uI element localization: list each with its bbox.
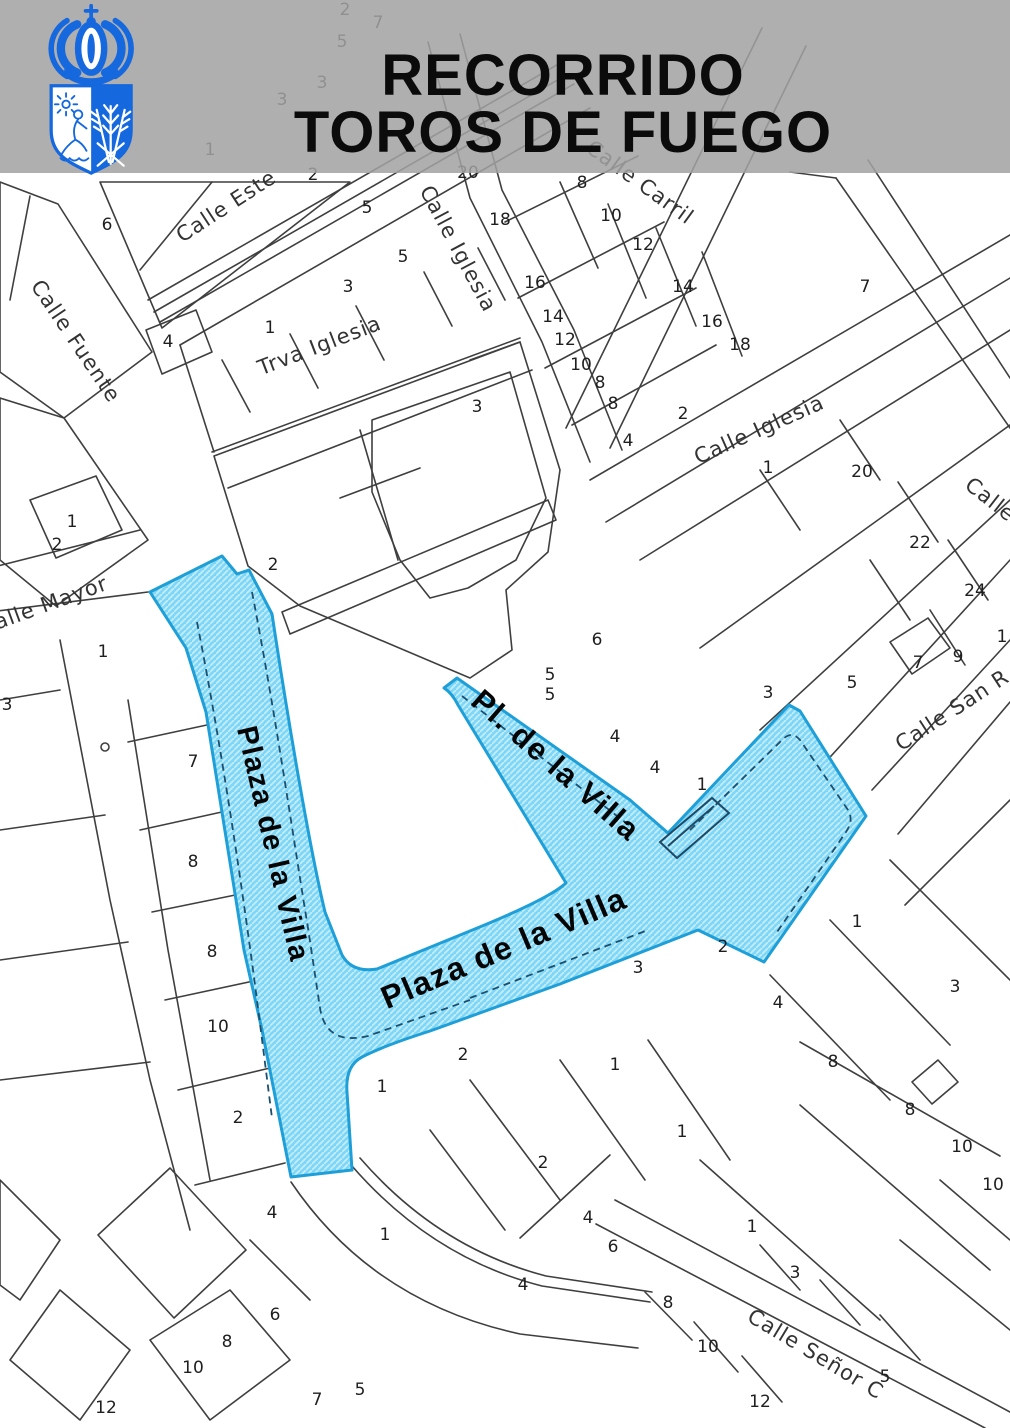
parcel-number: 10 xyxy=(570,355,592,375)
parcel-number: 7 xyxy=(913,653,924,673)
parcel-number: 1 xyxy=(265,318,276,338)
parcel-number: 2 xyxy=(678,404,689,424)
parcel-number: 4 xyxy=(163,332,174,352)
parcel-number: 1 xyxy=(763,458,774,478)
parcel-number: 6 xyxy=(608,1237,619,1257)
parcel-number: 1 xyxy=(677,1122,688,1142)
parcel-number: 8 xyxy=(207,942,218,962)
parcel-number: 8 xyxy=(595,373,606,393)
parcel-number: 10 xyxy=(600,206,622,226)
parcel-number: 4 xyxy=(773,993,784,1013)
parcel-number: 7 xyxy=(188,752,199,772)
parcel-number: 5 xyxy=(355,1380,366,1400)
parcel-number: 10 xyxy=(982,1175,1004,1195)
parcel-number: 4 xyxy=(623,431,634,451)
parcel-number: 14 xyxy=(672,277,694,297)
header-band: RECORRIDO TOROS DE FUEGO xyxy=(0,0,1010,173)
parcel-number: 8 xyxy=(608,394,619,414)
page-title-line1: RECORRIDO xyxy=(381,43,744,108)
parcel-number: 16 xyxy=(701,312,723,332)
parcel-number: 1 xyxy=(852,912,863,932)
parcel-number: 4 xyxy=(650,758,661,778)
parcel-number: 3 xyxy=(472,397,483,417)
parcel-number: 8 xyxy=(663,1293,674,1313)
parcel-number: 2 xyxy=(458,1045,469,1065)
parcel-number: 5 xyxy=(545,685,556,705)
parcel-number: 12 xyxy=(749,1392,771,1412)
parcel-number: 7 xyxy=(860,277,871,297)
parcel-number: 16 xyxy=(524,273,546,293)
parcel-number: 20 xyxy=(851,462,873,482)
parcel-number: 6 xyxy=(270,1305,281,1325)
parcel-number: 1 xyxy=(67,512,78,532)
parcel-number: 6 xyxy=(102,215,113,235)
parcel-number: 8 xyxy=(905,1100,916,1120)
parcel-number: 1 xyxy=(997,627,1008,647)
parcel-number: 5 xyxy=(398,247,409,267)
parcel-number: 8 xyxy=(828,1052,839,1072)
parcel-number: 1 xyxy=(697,775,708,795)
parcel-number: 8 xyxy=(577,173,588,193)
parcel-number: 3 xyxy=(2,695,13,715)
parcel-number: 4 xyxy=(518,1275,529,1295)
parcel-number: 1 xyxy=(98,642,109,662)
parcel-number: 1 xyxy=(747,1217,758,1237)
parcel-number: 4 xyxy=(267,1203,278,1223)
parcel-number: 5 xyxy=(847,673,858,693)
parcel-number: 4 xyxy=(610,727,621,747)
parcel-number: 14 xyxy=(542,307,564,327)
parcel-number: 10 xyxy=(951,1137,973,1157)
parcel-number: 22 xyxy=(909,533,931,553)
parcel-number: 1 xyxy=(610,1055,621,1075)
parcel-number: 3 xyxy=(633,958,644,978)
parcel-number: 3 xyxy=(343,277,354,297)
parcel-number: 10 xyxy=(207,1017,229,1037)
parcel-number: 10 xyxy=(182,1358,204,1378)
parcel-number: 1 xyxy=(380,1225,391,1245)
parcel-number: 6 xyxy=(592,630,603,650)
parcel-number: 18 xyxy=(489,210,511,230)
parcel-number: 2 xyxy=(268,555,279,575)
parcel-number: 12 xyxy=(554,330,576,350)
parcel-number: 7 xyxy=(312,1390,323,1410)
parcel-number: 2 xyxy=(52,535,63,555)
parcel-number: 5 xyxy=(545,665,556,685)
page-title-line2: TOROS DE FUEGO xyxy=(294,100,832,165)
parcel-number: 3 xyxy=(790,1263,801,1283)
parcel-number: 5 xyxy=(362,198,373,218)
map-page: Calle EsteCalle FuenteCalle IglesiaTrva … xyxy=(0,0,1010,1428)
town-map: Calle EsteCalle FuenteCalle IglesiaTrva … xyxy=(0,0,1010,1428)
parcel-number: 8 xyxy=(188,852,199,872)
parcel-number: 3 xyxy=(950,977,961,997)
parcel-number: 2 xyxy=(233,1108,244,1128)
parcel-number: 1 xyxy=(377,1077,388,1097)
parcel-number: 24 xyxy=(964,581,986,601)
town-crest-icon xyxy=(51,6,131,173)
parcel-number: 18 xyxy=(729,335,751,355)
parcel-number: 10 xyxy=(697,1337,719,1357)
parcel-number: 4 xyxy=(583,1208,594,1228)
parcel-number: 12 xyxy=(95,1398,117,1418)
parcel-number: 12 xyxy=(632,235,654,255)
parcel-number: 8 xyxy=(222,1332,233,1352)
parcel-number: 9 xyxy=(953,647,964,667)
parcel-number: 3 xyxy=(763,683,774,703)
parcel-number: 2 xyxy=(538,1153,549,1173)
parcel-number: 5 xyxy=(880,1367,891,1387)
parcel-number: 2 xyxy=(718,937,729,957)
